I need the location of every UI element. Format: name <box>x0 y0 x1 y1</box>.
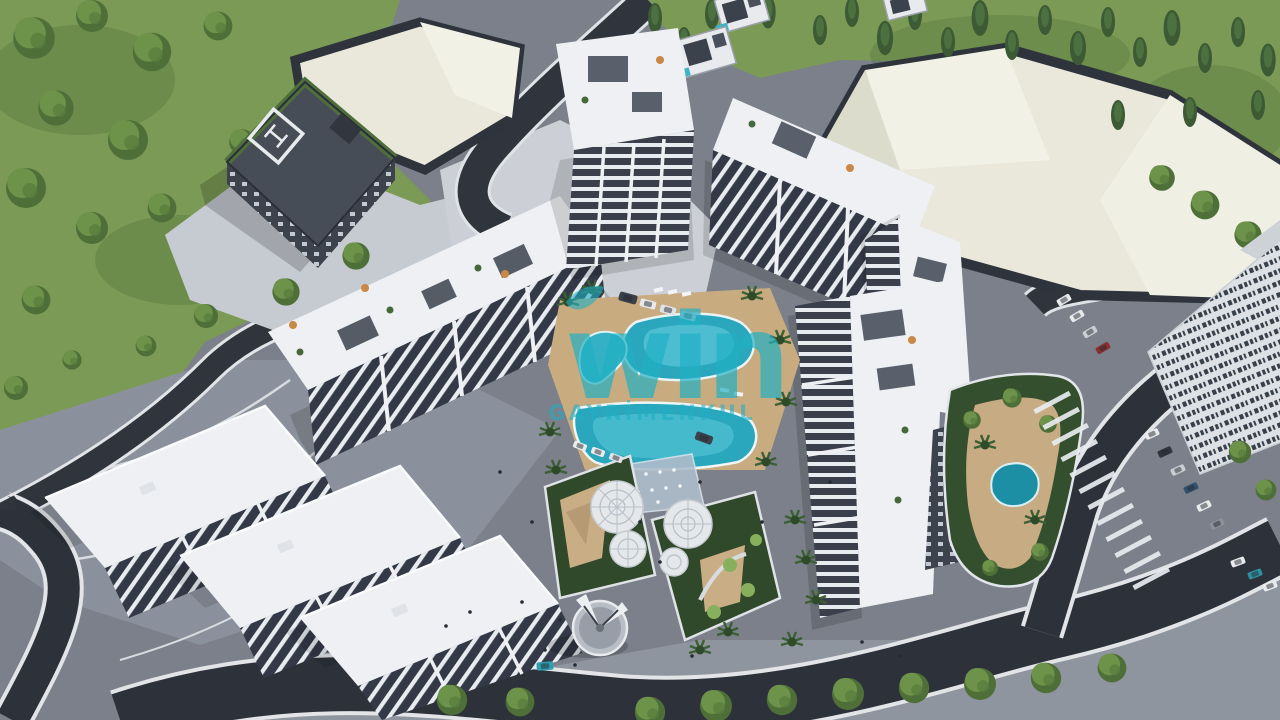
bush <box>750 534 762 546</box>
rooftop-unit <box>588 56 628 82</box>
tree <box>1149 165 1175 191</box>
street-tree <box>1098 654 1127 683</box>
conifer-tree <box>941 27 955 57</box>
conifer-tree <box>648 3 662 33</box>
roof-pinwheel <box>501 270 509 278</box>
street-tree <box>506 688 535 717</box>
tree <box>1031 543 1049 561</box>
street-tree <box>832 678 864 710</box>
roof-planter <box>475 265 482 272</box>
car-on-road <box>536 661 553 671</box>
roof-planter <box>749 121 756 128</box>
roof-planter <box>297 349 304 356</box>
tree <box>22 286 51 315</box>
roof-pinwheel <box>289 321 297 329</box>
tree <box>76 212 108 244</box>
tree <box>133 33 171 71</box>
bush <box>723 558 737 572</box>
conifer-tree <box>1070 31 1086 66</box>
tree <box>76 0 108 32</box>
tree <box>136 336 157 357</box>
watermark: win GAYRİMENKUL <box>548 286 787 426</box>
playground-dome <box>610 531 646 567</box>
conifer-tree <box>972 0 989 36</box>
rooftop-unit <box>632 92 662 112</box>
tree <box>62 350 81 369</box>
garden-pond <box>991 463 1038 506</box>
roof-planter <box>582 97 589 104</box>
street-tree <box>1229 441 1251 463</box>
street-tree <box>964 668 996 700</box>
building-roof <box>556 28 694 150</box>
scene-canvas: win GAYRİMENKUL <box>0 0 1280 720</box>
conifer-tree <box>1260 44 1275 77</box>
roof-pinwheel <box>908 336 916 344</box>
street-tree <box>899 673 929 703</box>
roof-pinwheel <box>846 164 854 172</box>
bush <box>741 583 755 597</box>
tree <box>963 411 981 429</box>
watermark-subtitle: GAYRİMENKUL <box>548 400 756 425</box>
street-tree <box>1256 480 1277 501</box>
tree <box>6 168 46 208</box>
playground-dome <box>660 548 688 576</box>
street-tree <box>437 685 467 715</box>
conifer-tree <box>1231 17 1245 47</box>
tree <box>38 90 73 125</box>
conifer-tree <box>1251 90 1265 120</box>
roof-planter <box>895 497 902 504</box>
tree <box>148 194 177 223</box>
roof-planter <box>387 307 394 314</box>
tree <box>204 12 233 41</box>
tree <box>272 278 299 305</box>
street-tree <box>1031 663 1061 693</box>
conifer-tree <box>1133 37 1147 67</box>
tree <box>194 304 218 328</box>
tree <box>342 242 369 269</box>
conifer-tree <box>813 15 827 45</box>
tree <box>1191 191 1220 220</box>
tree <box>13 17 55 59</box>
tree <box>4 376 28 400</box>
roof-planter <box>902 427 909 434</box>
aerial-render: win GAYRİMENKUL <box>0 0 1280 720</box>
conifer-tree <box>1005 30 1019 60</box>
roof-pinwheel <box>361 284 369 292</box>
tree <box>108 120 148 160</box>
bush <box>707 605 721 619</box>
conifer-tree <box>1183 97 1197 127</box>
tree <box>982 560 998 576</box>
tree <box>1002 388 1021 407</box>
playground-dome <box>591 481 643 533</box>
conifer-tree <box>1111 100 1125 130</box>
conifer-tree <box>1164 10 1181 46</box>
conifer-tree <box>1101 7 1115 37</box>
street-tree <box>767 685 797 715</box>
conifer-tree <box>1198 43 1212 73</box>
playground-dome <box>664 500 712 548</box>
conifer-tree <box>877 21 893 56</box>
roof-pinwheel <box>656 56 664 64</box>
conifer-tree <box>1038 5 1052 35</box>
